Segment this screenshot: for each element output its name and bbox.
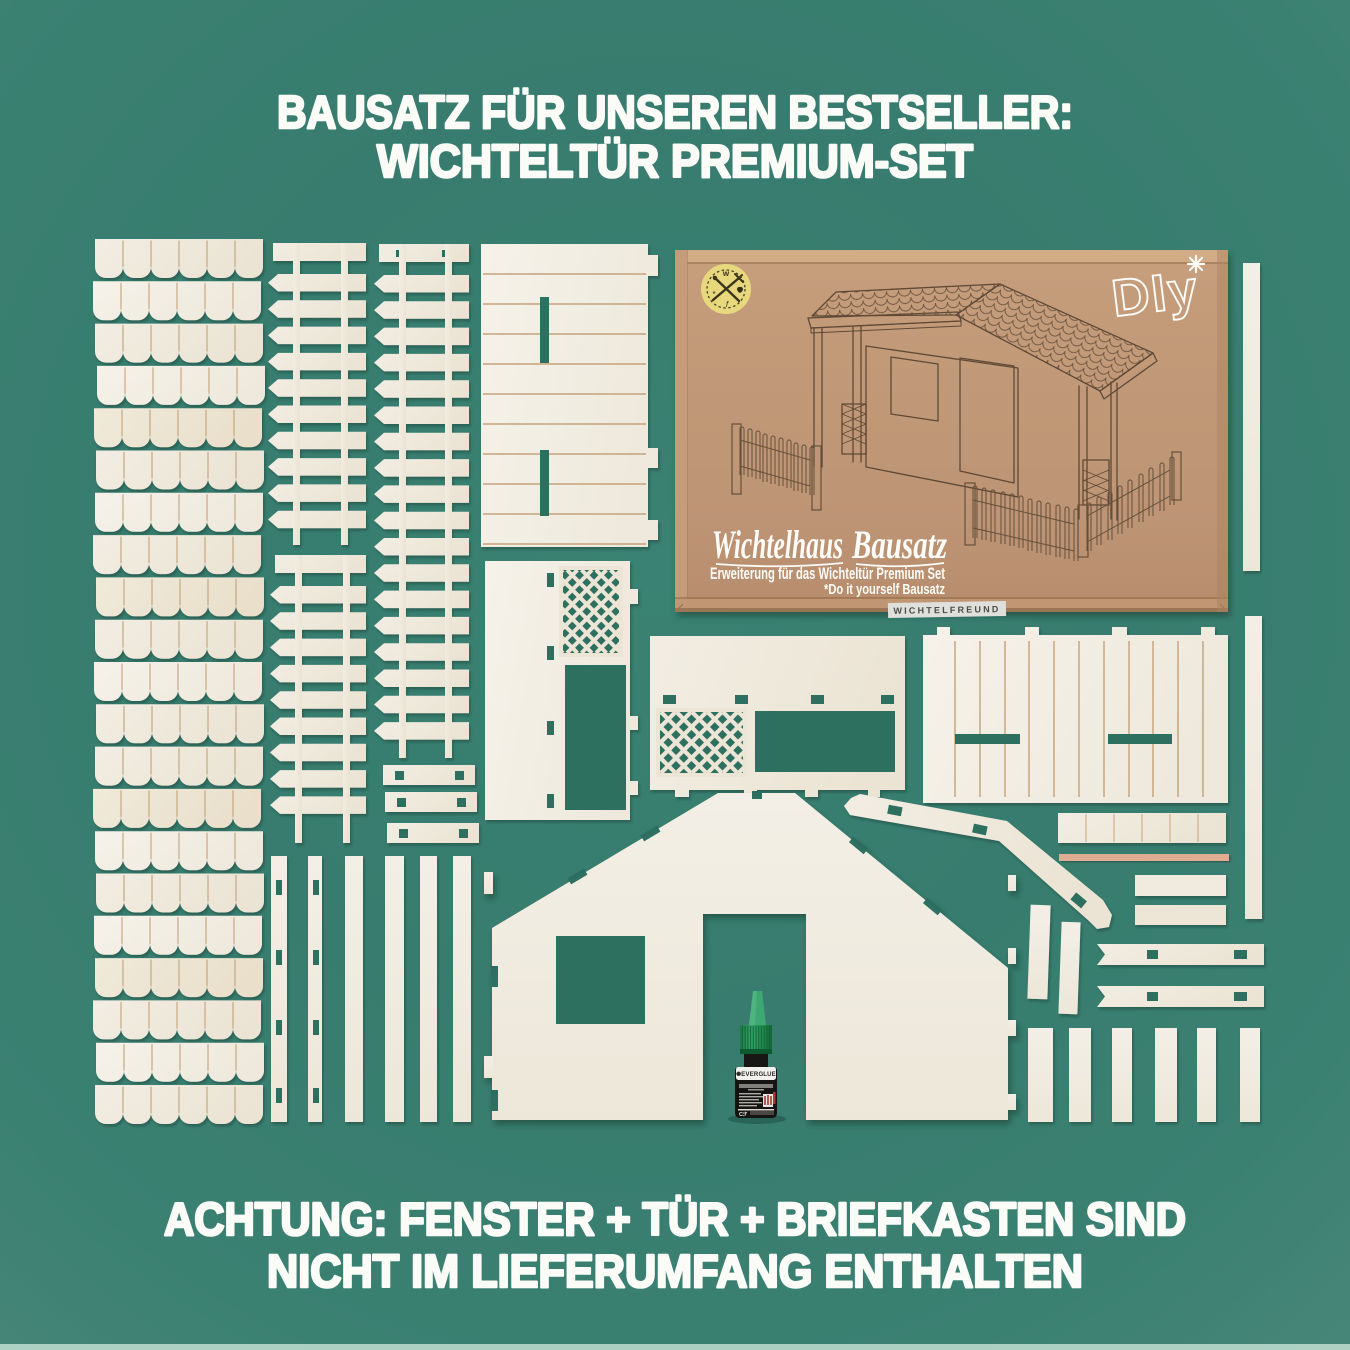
svg-text:*: * [712,290,715,299]
svg-text:Cℱ: Cℱ [739,1111,748,1118]
svg-text:Bausatz: Bausatz [851,522,947,567]
svg-text:WICHTELTÜR PREMIUM-SET: WICHTELTÜR PREMIUM-SET [377,135,973,187]
svg-text:ACHTUNG: FENSTER + TÜR + BRIEF: ACHTUNG: FENSTER + TÜR + BRIEFKASTEN SIN… [164,1193,1186,1245]
svg-text:BAUSATZ FÜR UNSEREN BESTSELLER: BAUSATZ FÜR UNSEREN BESTSELLER: [277,86,1073,138]
svg-text:*Do it yourself Bausatz: *Do it yourself Bausatz [824,581,945,598]
svg-text:✺EVERGLUE: ✺EVERGLUE [736,1071,776,1078]
svg-text:WICHTELFREUND: WICHTELFREUND [893,604,1000,616]
svg-text:NICHT IM LIEFERUMFANG ENTHALTE: NICHT IM LIEFERUMFANG ENTHALTEN [267,1245,1083,1297]
svg-text:w: w [722,269,730,278]
svg-text:Wichtelhaus: Wichtelhaus [712,522,843,567]
svg-text:DIy: DIy [1109,260,1202,328]
